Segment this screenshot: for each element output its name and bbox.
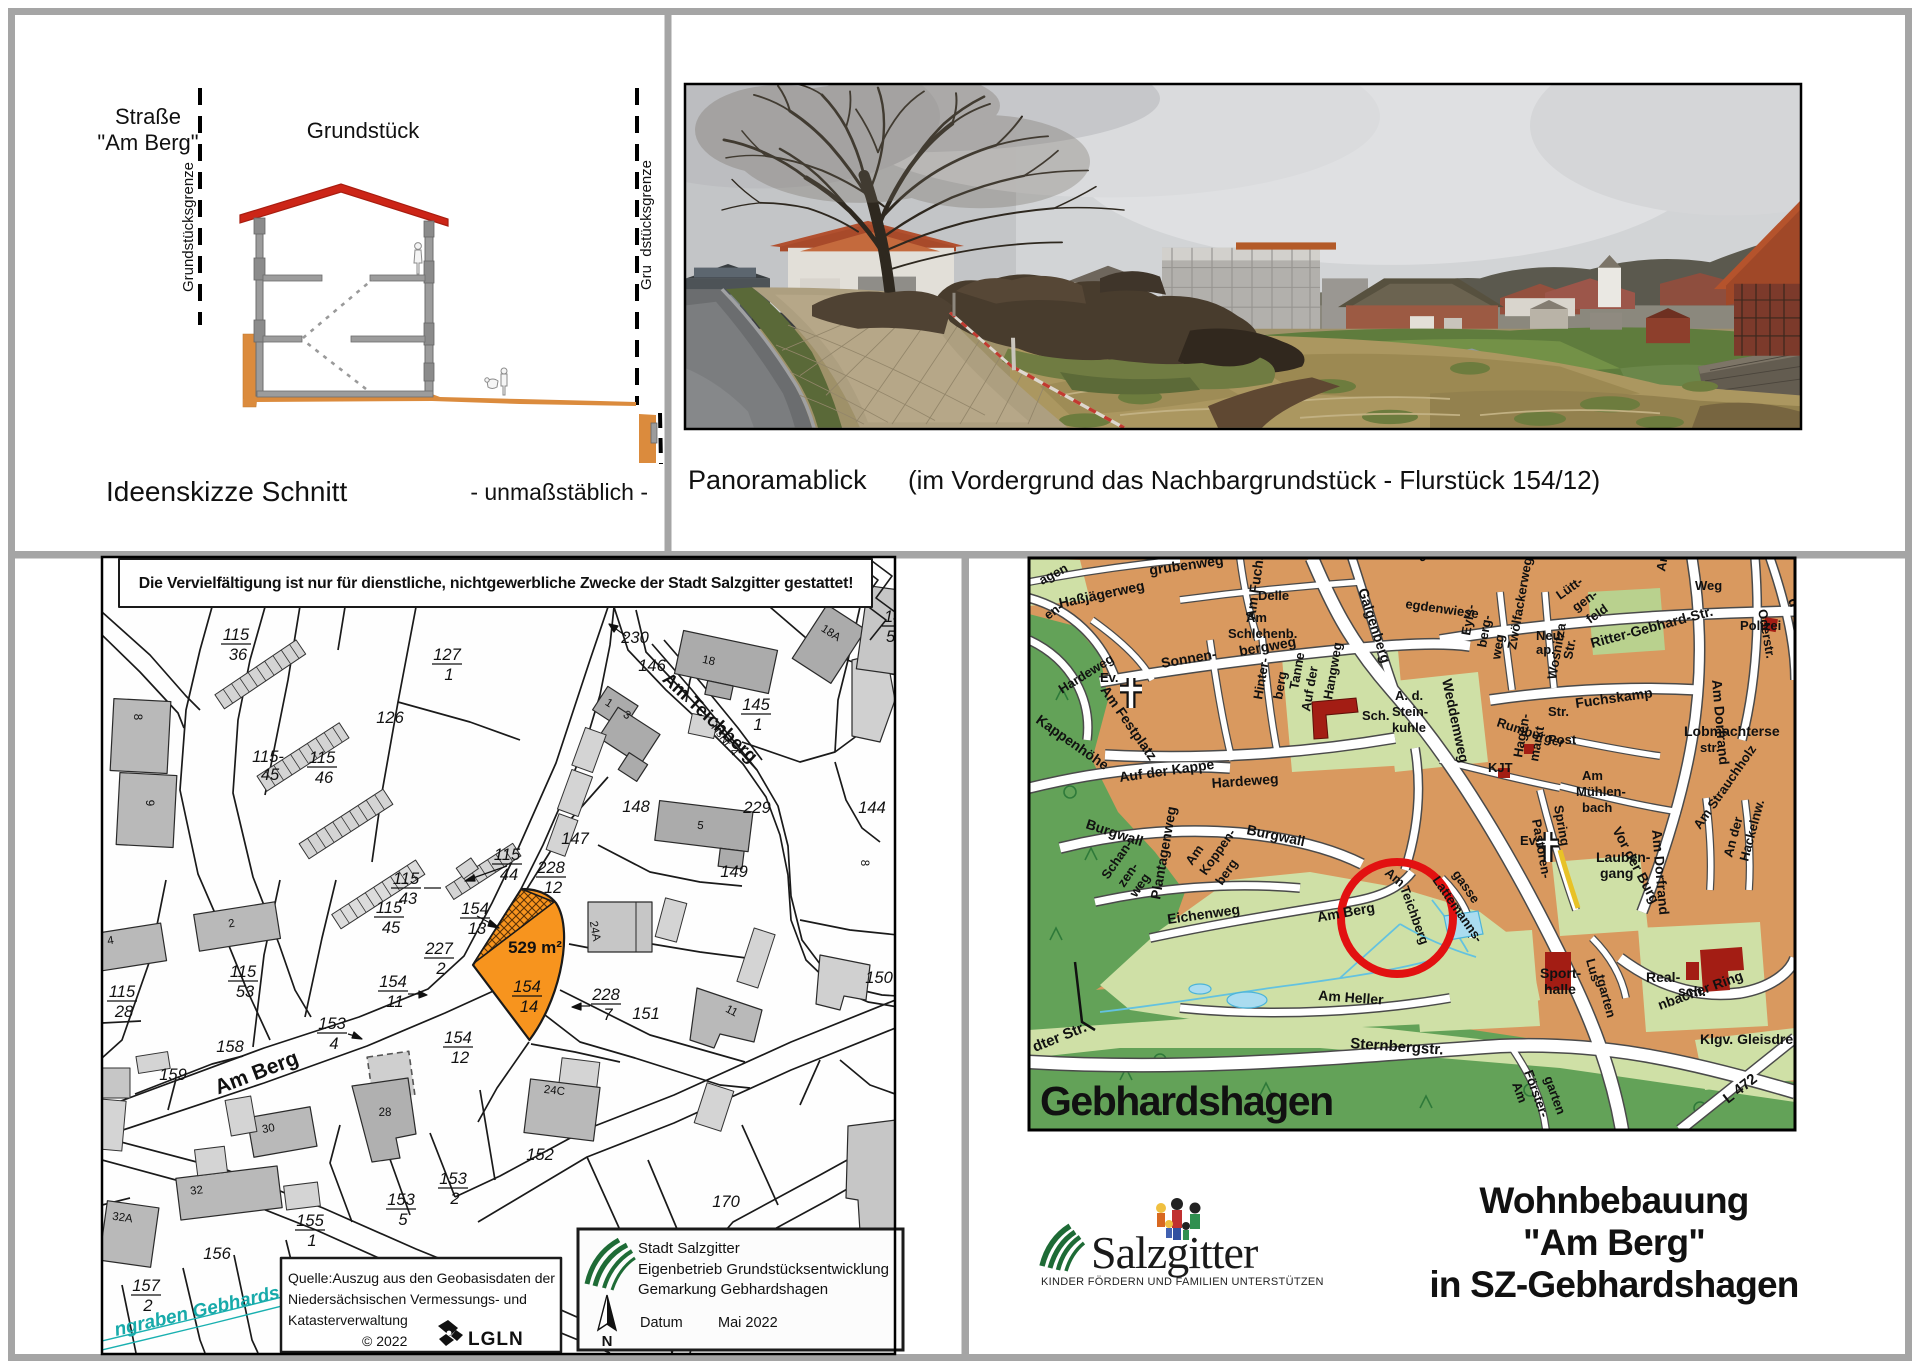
- svg-text:Mai 2022: Mai 2022: [718, 1315, 778, 1331]
- svg-text:2: 2: [435, 960, 445, 978]
- svg-text:KINDER FÖRDERN UND FAMILIEN UN: KINDER FÖRDERN UND FAMILIEN UNTERSTÜTZEN: [1041, 1276, 1324, 1288]
- svg-text:158: 158: [216, 1038, 244, 1056]
- svg-text:53: 53: [236, 983, 255, 1001]
- svg-text:145: 145: [742, 696, 770, 714]
- svg-text:Schlehenb.: Schlehenb.: [1228, 626, 1297, 641]
- svg-text:1: 1: [307, 1232, 316, 1250]
- svg-text:126: 126: [376, 709, 404, 727]
- svg-text:Delle: Delle: [1258, 588, 1289, 603]
- svg-text:12: 12: [544, 879, 562, 897]
- svg-text:Katasterverwaltung: Katasterverwaltung: [288, 1312, 408, 1328]
- svg-text:228: 228: [536, 859, 565, 877]
- svg-text:154: 154: [444, 1029, 472, 1047]
- svg-text:115-: 115-: [252, 748, 284, 766]
- svg-text:28: 28: [114, 1003, 134, 1021]
- svg-text:Niedersächsischen Vermessungs-: Niedersächsischen Vermessungs- und: [288, 1291, 527, 1307]
- svg-text:152: 152: [526, 1146, 554, 1164]
- svg-text:30: 30: [261, 1122, 276, 1136]
- svg-text:150: 150: [865, 969, 893, 987]
- svg-text:Real-: Real-: [1646, 969, 1681, 985]
- svg-text:Datum: Datum: [640, 1315, 683, 1331]
- svg-text:Am: Am: [1582, 768, 1603, 783]
- svg-text:(im Vordergrund das Nachbargru: (im Vordergrund das Nachbargrundstück - …: [908, 465, 1600, 495]
- svg-text:"Am Berg": "Am Berg": [1523, 1222, 1705, 1263]
- svg-text:146: 146: [638, 657, 666, 675]
- svg-text:Mühlen-: Mühlen-: [1576, 784, 1626, 799]
- svg-text:115: 115: [230, 963, 257, 981]
- svg-text:Weg: Weg: [1695, 578, 1722, 593]
- svg-text:11: 11: [386, 993, 403, 1011]
- svg-text:2: 2: [449, 1190, 459, 1208]
- svg-text:9: 9: [143, 800, 155, 806]
- svg-text:149: 149: [720, 863, 748, 881]
- svg-text:1: 1: [444, 666, 453, 684]
- svg-text:115: 115: [376, 899, 403, 917]
- svg-text:14: 14: [520, 998, 538, 1016]
- svg-text:148: 148: [622, 798, 650, 816]
- svg-text:5: 5: [398, 1211, 408, 1229]
- svg-text:227: 227: [424, 940, 453, 958]
- svg-text:Wohnbebauung: Wohnbebauung: [1479, 1180, 1748, 1221]
- svg-text:36: 36: [229, 646, 248, 664]
- svg-text:229: 229: [742, 799, 771, 817]
- svg-text:Quelle:Auszug aus den Geobasis: Quelle:Auszug aus den Geobasisdaten der: [288, 1270, 555, 1286]
- svg-text:Sport-: Sport-: [1540, 965, 1582, 981]
- svg-text:24C: 24C: [543, 1084, 565, 1098]
- svg-text:Grundstücksgrenze: Grundstücksgrenze: [180, 162, 197, 292]
- svg-text:Grundstück: Grundstück: [307, 118, 420, 143]
- svg-text:Ev.: Ev.: [1100, 670, 1119, 685]
- svg-text:153: 153: [318, 1015, 346, 1033]
- svg-text:Stein-: Stein-: [1392, 704, 1428, 719]
- svg-text:Salzgitter: Salzgitter: [1091, 1227, 1258, 1278]
- svg-text:13: 13: [468, 920, 487, 938]
- svg-text:170: 170: [712, 1193, 740, 1211]
- svg-text:Stadt Salzgitter: Stadt Salzgitter: [638, 1240, 740, 1257]
- svg-text:in SZ-Gebhardshagen: in SZ-Gebhardshagen: [1429, 1264, 1798, 1305]
- svg-text:28: 28: [379, 1107, 392, 1119]
- svg-text:N: N: [602, 1333, 613, 1350]
- svg-text:bach: bach: [1582, 800, 1612, 815]
- svg-text:kuhle: kuhle: [1392, 720, 1426, 735]
- svg-text:155: 155: [296, 1212, 324, 1230]
- svg-text:gang: gang: [1600, 865, 1633, 881]
- svg-text:Gru dstücksgrenze: Gru dstücksgrenze: [638, 160, 655, 290]
- svg-text:Sch.: Sch.: [1362, 708, 1389, 723]
- svg-text:44: 44: [500, 866, 518, 884]
- svg-text:Ideenskizze Schnitt: Ideenskizze Schnitt: [106, 476, 347, 507]
- svg-text:8: 8: [131, 714, 143, 720]
- svg-text:Lobmachterse: Lobmachterse: [1684, 723, 1780, 739]
- svg-text:153: 153: [439, 1170, 467, 1188]
- svg-text:154: 154: [379, 973, 407, 991]
- svg-text:115: 115: [309, 749, 336, 767]
- svg-text:115: 115: [223, 626, 250, 644]
- svg-text:Am: Am: [1246, 610, 1267, 625]
- svg-text:Eigenbetrieb Grundstücksentwic: Eigenbetrieb Grundstücksentwicklung: [638, 1261, 889, 1278]
- svg-text:© 2022: © 2022: [362, 1333, 408, 1349]
- svg-text:115: 115: [393, 870, 420, 888]
- svg-text:"Am Berg": "Am Berg": [97, 130, 198, 155]
- svg-text:A. d.: A. d.: [1395, 688, 1423, 703]
- svg-text:151: 151: [632, 1005, 660, 1023]
- svg-text:154: 154: [513, 978, 541, 996]
- svg-text:4: 4: [329, 1035, 338, 1053]
- svg-text:LGLN: LGLN: [468, 1329, 524, 1350]
- svg-text:157: 157: [132, 1277, 160, 1295]
- svg-text:127: 127: [433, 646, 461, 664]
- svg-text:45: 45: [261, 766, 280, 784]
- svg-text:2: 2: [142, 1297, 152, 1315]
- svg-text:str.: str.: [1700, 740, 1720, 755]
- svg-text:529 m²: 529 m²: [508, 938, 562, 957]
- svg-text:228: 228: [591, 986, 620, 1004]
- svg-text:147: 147: [561, 830, 589, 848]
- svg-text:halle: halle: [1544, 981, 1576, 997]
- svg-text:Gemarkung Gebhardshagen: Gemarkung Gebhardshagen: [638, 1281, 828, 1298]
- svg-text:144: 144: [858, 799, 886, 817]
- svg-text:1: 1: [753, 716, 762, 734]
- svg-text:156: 156: [203, 1245, 231, 1263]
- svg-text:Klgv. Gleisdreie: Klgv. Gleisdreie: [1700, 1031, 1805, 1047]
- svg-text:45: 45: [382, 919, 401, 937]
- svg-text:7: 7: [603, 1006, 613, 1024]
- svg-text:Straße: Straße: [115, 104, 181, 129]
- svg-text:- unmaßstäblich -: - unmaßstäblich -: [470, 479, 648, 505]
- svg-text:153: 153: [387, 1191, 415, 1209]
- svg-text:230: 230: [620, 629, 649, 647]
- svg-text:159: 159: [159, 1066, 187, 1084]
- svg-text:Ev.: Ev.: [1520, 833, 1539, 848]
- svg-text:Post: Post: [1548, 732, 1577, 747]
- svg-text:Gebhardshagen: Gebhardshagen: [1040, 1078, 1333, 1124]
- svg-text:115: 115: [109, 983, 136, 1001]
- svg-text:46: 46: [315, 769, 334, 787]
- svg-text:154: 154: [461, 900, 489, 918]
- svg-text:Str.: Str.: [1548, 704, 1569, 719]
- svg-text:Panoramablick: Panoramablick: [688, 465, 867, 495]
- svg-text:8: 8: [858, 860, 870, 866]
- svg-text:KJT: KJT: [1488, 760, 1513, 775]
- svg-text:Die Vervielfältigung ist nur f: Die Vervielfältigung ist nur für dienstl…: [139, 575, 854, 592]
- svg-text:12: 12: [451, 1049, 469, 1067]
- svg-text:115: 115: [494, 846, 521, 864]
- svg-text:32: 32: [190, 1184, 204, 1197]
